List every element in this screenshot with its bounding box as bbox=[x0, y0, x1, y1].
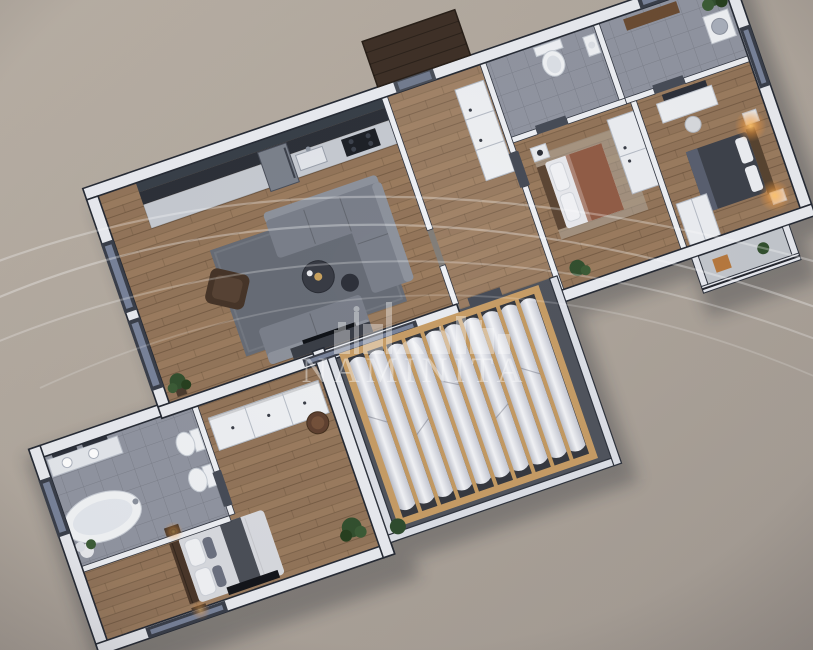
floor-plan-render: NAMINITA bbox=[0, 0, 813, 650]
render-canvas: NAMINITA bbox=[0, 0, 813, 650]
vignette bbox=[0, 0, 813, 650]
